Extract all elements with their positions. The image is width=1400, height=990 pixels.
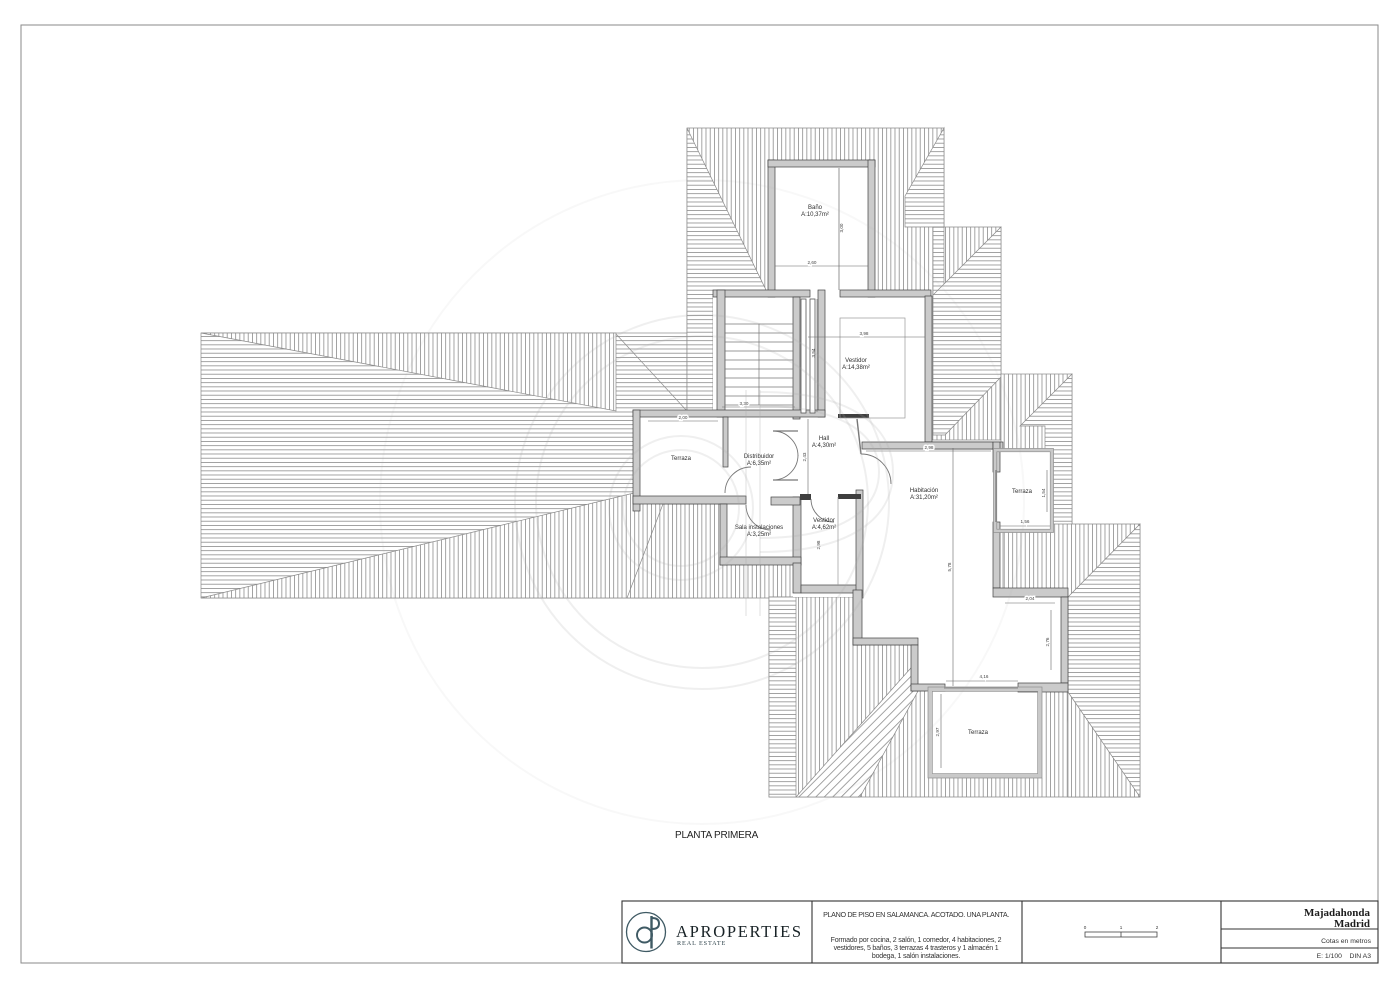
svg-text:Habitación: Habitación — [910, 488, 938, 494]
svg-text:Hall: Hall — [819, 436, 829, 442]
svg-text:Formado por cocina, 2 salón, 1: Formado por cocina, 2 salón, 1 comedor, … — [831, 937, 1002, 944]
svg-text:5,78: 5,78 — [947, 562, 952, 571]
svg-text:Madrid: Madrid — [1334, 918, 1370, 930]
svg-text:APROPERTIES: APROPERTIES — [676, 922, 803, 941]
svg-text:2,04: 2,04 — [1026, 596, 1035, 601]
svg-text:2,60: 2,60 — [808, 260, 817, 265]
svg-text:Vestidor: Vestidor — [845, 358, 867, 364]
svg-text:2,76: 2,76 — [1045, 637, 1050, 646]
svg-text:PLANTA PRIMERA: PLANTA PRIMERA — [675, 830, 759, 841]
svg-text:Terraza: Terraza — [968, 730, 989, 736]
svg-text:PLANO DE PISO EN SALAMANCA. AC: PLANO DE PISO EN SALAMANCA. ACOTADO. UNA… — [823, 910, 1009, 919]
svg-text:Terraza: Terraza — [671, 456, 692, 462]
svg-text:A:10,37m²: A:10,37m² — [801, 212, 829, 218]
svg-text:1: 1 — [1120, 925, 1123, 930]
svg-text:A:14,38m²: A:14,38m² — [842, 365, 870, 371]
svg-text:4,16: 4,16 — [980, 674, 989, 679]
svg-text:E: 1/100 DIN A3: E: 1/100 DIN A3 — [1317, 953, 1372, 960]
svg-text:2,97: 2,97 — [935, 727, 940, 736]
svg-text:2,00: 2,00 — [679, 415, 688, 420]
svg-text:2,98: 2,98 — [925, 445, 934, 450]
svg-text:A:31,20m²: A:31,20m² — [910, 495, 938, 501]
svg-text:Terraza: Terraza — [1012, 489, 1033, 495]
svg-text:3,30: 3,30 — [740, 401, 749, 406]
svg-text:3,98: 3,98 — [860, 331, 869, 336]
svg-text:1,54: 1,54 — [1041, 488, 1046, 497]
svg-text:2: 2 — [1156, 925, 1159, 930]
svg-text:A:4,30m²: A:4,30m² — [812, 443, 836, 449]
svg-text:REAL ESTATE: REAL ESTATE — [677, 940, 726, 947]
svg-text:1,56: 1,56 — [1021, 519, 1030, 524]
svg-text:0: 0 — [1084, 925, 1087, 930]
svg-text:2,43: 2,43 — [802, 452, 807, 461]
svg-text:3,00: 3,00 — [839, 223, 844, 232]
svg-text:vestidores, 5 baños, 3 terraza: vestidores, 5 baños, 3 terrazas 4 traste… — [834, 945, 999, 952]
svg-text:bodega, 1 salón instalaciones.: bodega, 1 salón instalaciones. — [872, 953, 960, 960]
svg-text:Vestidor: Vestidor — [813, 518, 835, 524]
svg-text:Cotas en metros: Cotas en metros — [1321, 938, 1371, 945]
svg-text:Baño: Baño — [808, 205, 823, 211]
